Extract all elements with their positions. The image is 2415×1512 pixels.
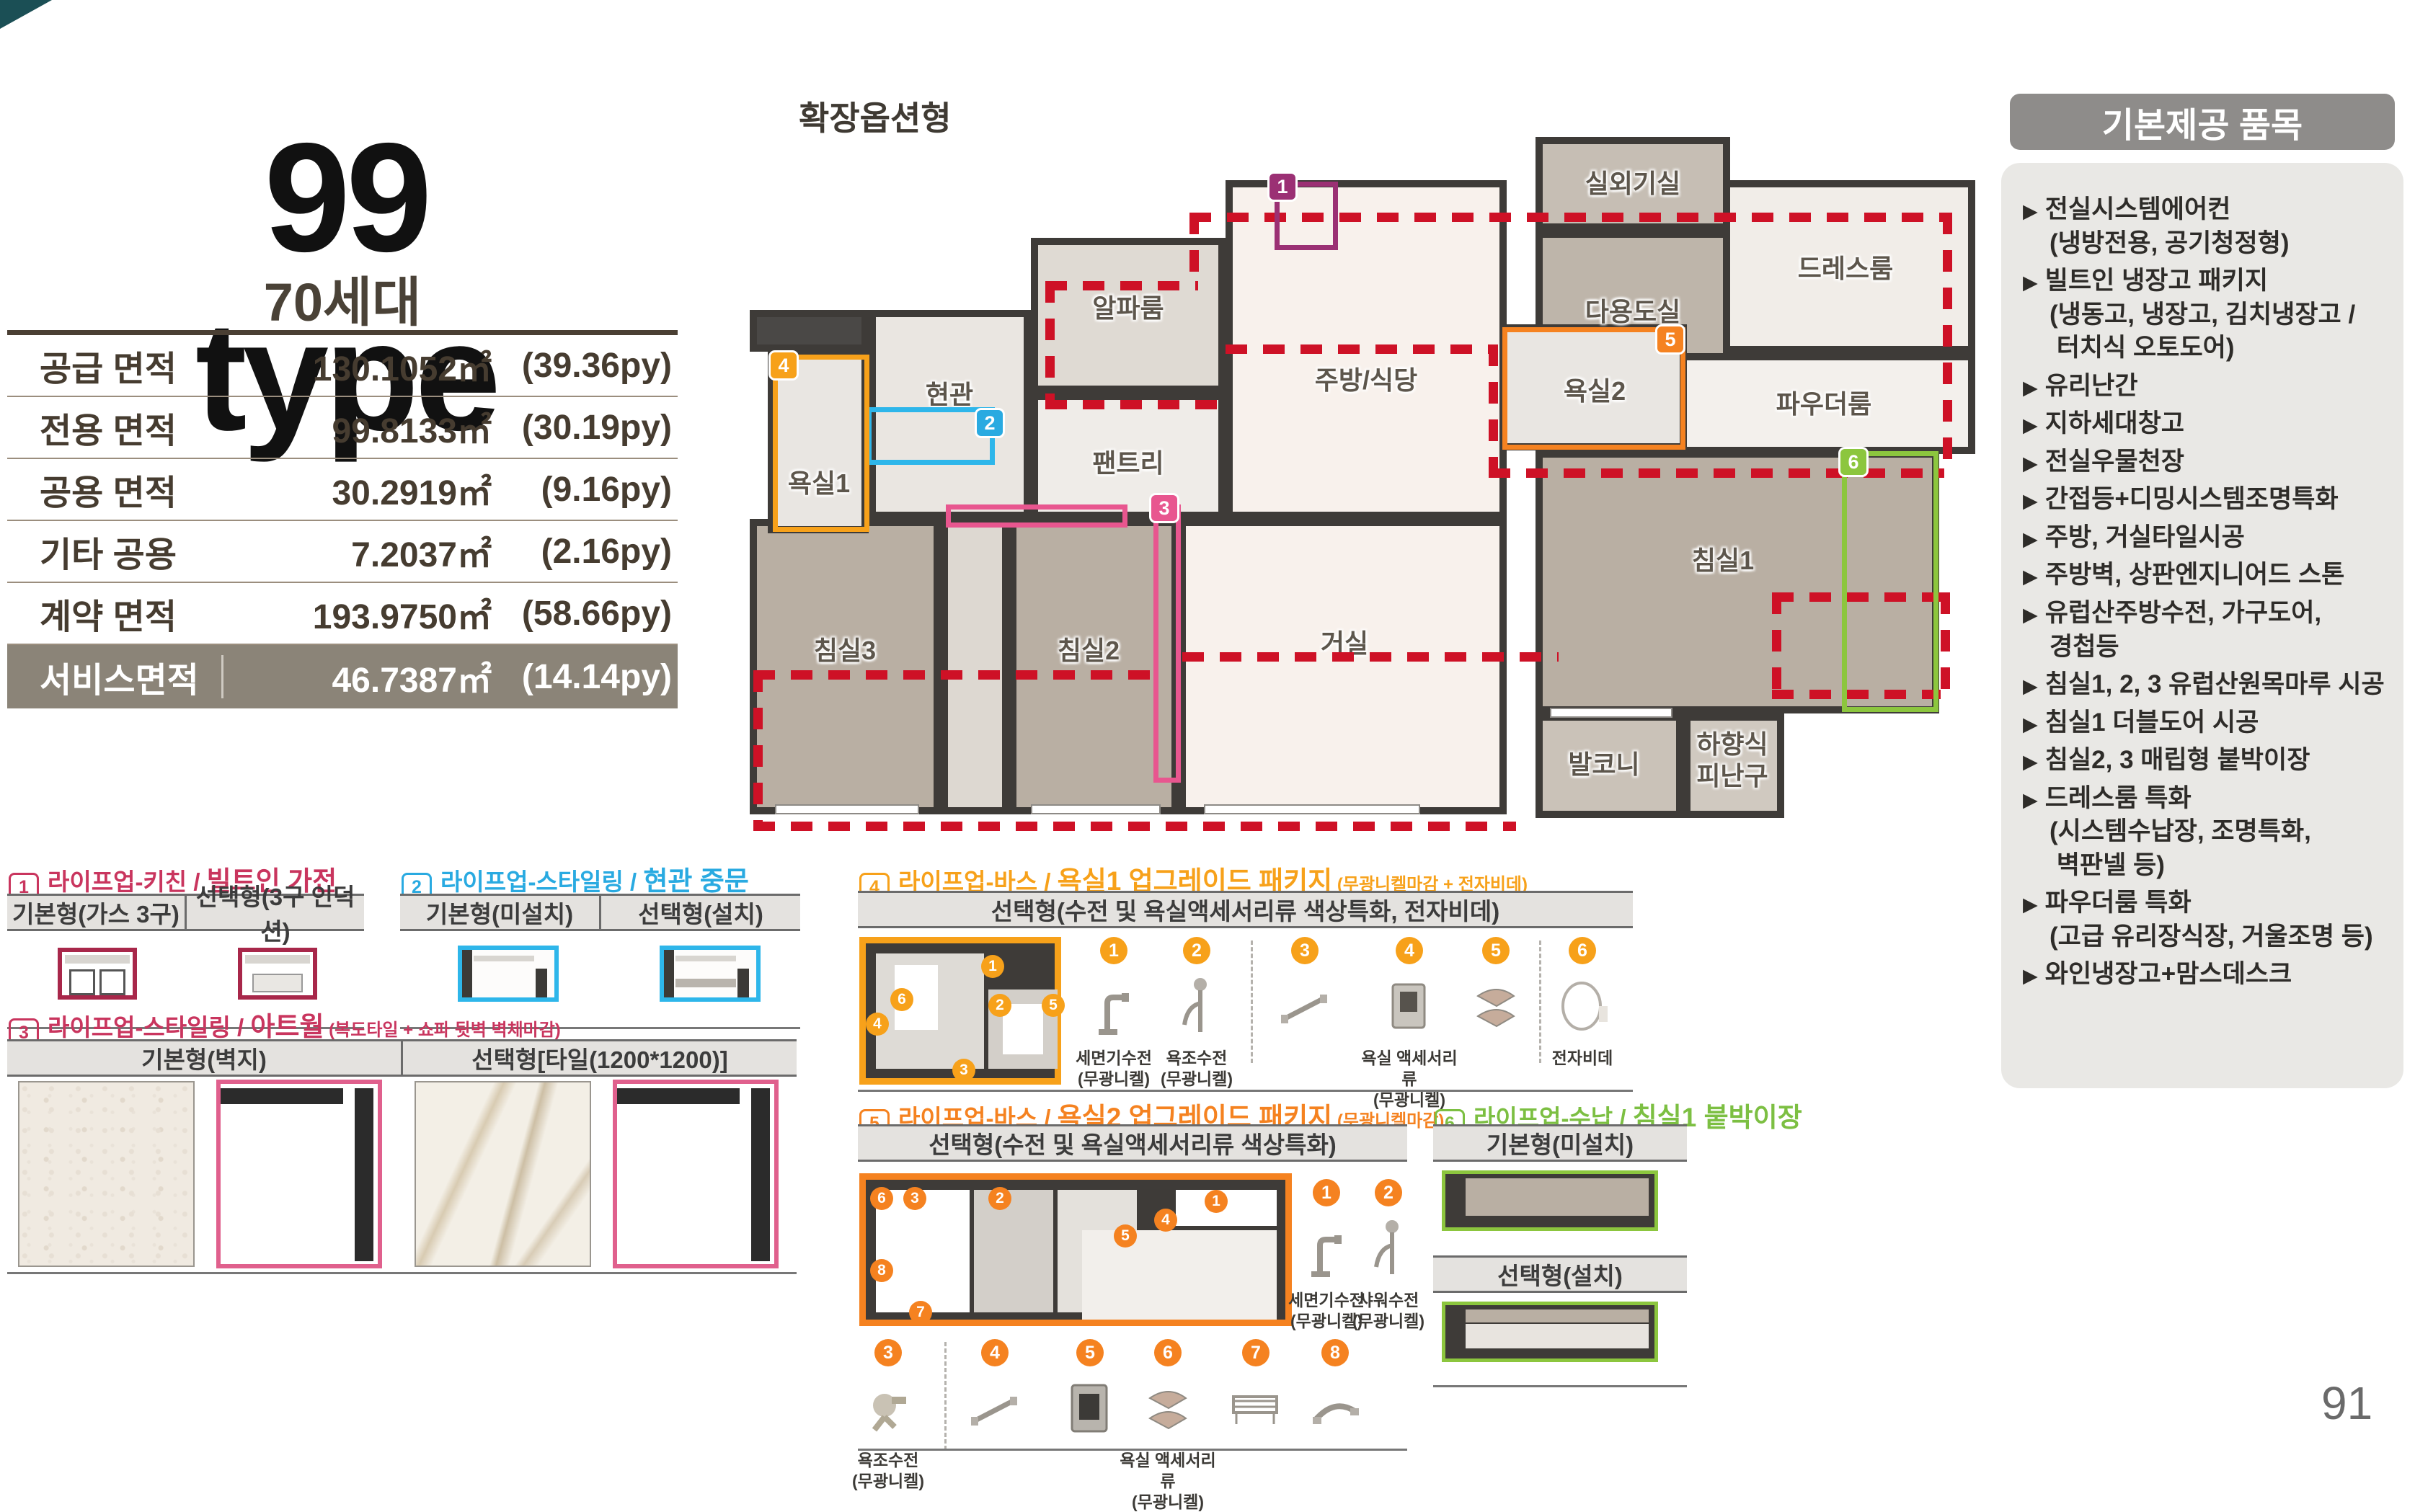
bar-icon bbox=[1277, 974, 1333, 1041]
extension-dashed-line bbox=[1772, 592, 1781, 691]
option-badge-5: 5 bbox=[1655, 324, 1685, 355]
product-badge-4: 4 bbox=[1396, 937, 1423, 964]
section4-bottom-line bbox=[858, 1090, 1633, 1092]
extension-dashed-line bbox=[753, 670, 1156, 680]
option-badge-3: 3 bbox=[1149, 493, 1179, 523]
section6-header-basic: 기본형(미설치) bbox=[1433, 1124, 1687, 1162]
section3-header: 기본형(벽지)선택형[타일(1200*1200)] bbox=[7, 1039, 797, 1077]
option-badge-1: 1 bbox=[1267, 172, 1298, 202]
closet-installed-image bbox=[1442, 1302, 1658, 1362]
faucet-icon bbox=[1086, 974, 1142, 1041]
product-badge-2: 2 bbox=[1183, 937, 1210, 964]
bidet-icon bbox=[1554, 974, 1610, 1041]
extension-dashed-line bbox=[1182, 652, 1559, 662]
section3-bottom-line bbox=[7, 1272, 797, 1274]
extension-dashed-line bbox=[1226, 344, 1491, 354]
tissue-icon bbox=[1062, 1377, 1118, 1443]
section5-header: 선택형(수전 및 욕실액세서리류 색상특화) bbox=[858, 1124, 1407, 1162]
section6-header-select: 선택형(설치) bbox=[1433, 1255, 1687, 1293]
product-badge-6: 6 bbox=[1569, 937, 1596, 964]
extension-dashed-line bbox=[753, 822, 1516, 831]
miniplan-badge-2: 2 bbox=[988, 1187, 1011, 1210]
header-cell: 선택형(수전 및 욕실액세서리류 색상특화, 전자비데) bbox=[858, 892, 1633, 927]
section6-bottom-line bbox=[1433, 1385, 1687, 1387]
window-strip bbox=[775, 804, 919, 814]
product-divider bbox=[944, 1342, 947, 1450]
section5-product: 4 bbox=[941, 1339, 1049, 1443]
wallpaper-sample-image bbox=[18, 1081, 195, 1267]
product-divider bbox=[1539, 940, 1541, 1063]
shower-icon bbox=[1169, 974, 1225, 1041]
section4-product: 6전자비데 bbox=[1528, 937, 1636, 1069]
section2-header: 기본형(미설치)선택형(설치) bbox=[400, 894, 800, 931]
extension-dashed-line bbox=[1045, 281, 1055, 402]
door-none-image bbox=[458, 946, 559, 1002]
handle-icon bbox=[1307, 1377, 1363, 1443]
option-badge-6: 6 bbox=[1838, 447, 1869, 477]
extension-dashed-line bbox=[1943, 213, 1952, 471]
header-cell: 선택형(설치) bbox=[1433, 1257, 1687, 1291]
extension-dashed-line bbox=[1189, 213, 1199, 283]
section5-product: 3욕조수전(무광니켈) bbox=[834, 1339, 942, 1492]
miniplan-badge-6: 6 bbox=[870, 1187, 893, 1210]
miniplan-badge-4: 4 bbox=[866, 1013, 889, 1036]
bath1-upgrade-plan: 164253 bbox=[859, 937, 1061, 1085]
shelves-icon bbox=[1140, 1377, 1196, 1443]
rack-icon bbox=[1228, 1377, 1284, 1443]
product-badge-3: 3 bbox=[874, 1339, 902, 1366]
miniplan-badge-6: 6 bbox=[890, 988, 913, 1011]
extension-dashed-line bbox=[753, 670, 763, 823]
miniplan-badge-4: 4 bbox=[1154, 1209, 1177, 1232]
section5-product: 8 bbox=[1281, 1339, 1389, 1443]
door-installed-image bbox=[660, 946, 761, 1002]
bar-icon bbox=[967, 1377, 1023, 1443]
product-badge-5: 5 bbox=[1076, 1339, 1104, 1366]
option-outline bbox=[1153, 504, 1181, 783]
miniplan-room bbox=[1082, 1230, 1277, 1320]
product-badge-4: 4 bbox=[981, 1339, 1009, 1366]
bath2-upgrade-plan: 63251487 bbox=[859, 1173, 1292, 1326]
option-badge-4: 4 bbox=[768, 350, 799, 381]
extension-dashed-line bbox=[1941, 592, 1950, 691]
extension-dashed-line bbox=[1045, 281, 1198, 290]
product-badge-6: 6 bbox=[1154, 1339, 1182, 1366]
header-cell: 기본형(미설치) bbox=[400, 895, 599, 930]
extension-dashed-line bbox=[1489, 344, 1498, 471]
miniplan-badge-2: 2 bbox=[988, 994, 1011, 1017]
miniplan-badge-1: 1 bbox=[981, 955, 1004, 978]
tubfaucet-icon bbox=[860, 1377, 916, 1443]
miniplan-room bbox=[974, 1190, 1053, 1312]
artwall-corner-diagram bbox=[216, 1080, 382, 1268]
header-cell: 선택형(3구 인덕션) bbox=[187, 878, 364, 947]
section5-product: 2샤워수전(무광니켈) bbox=[1334, 1179, 1443, 1332]
product-caption: 욕조수전(무광니켈) bbox=[834, 1450, 942, 1492]
closet-basic-image bbox=[1442, 1170, 1658, 1231]
miniplan-badge-7: 7 bbox=[909, 1301, 932, 1324]
header-cell: 선택형[타일(1200*1200)] bbox=[403, 1041, 797, 1075]
shower-icon bbox=[1360, 1217, 1417, 1283]
miniplan-badge-1: 1 bbox=[1205, 1190, 1228, 1213]
section4-product: 3 bbox=[1251, 937, 1359, 1041]
artwall-corner-diagram bbox=[613, 1080, 779, 1268]
section4-header: 선택형(수전 및 욕실액세서리류 색상특화, 전자비데) bbox=[858, 891, 1633, 928]
window-strip bbox=[1031, 804, 1161, 814]
plate-icon bbox=[1381, 974, 1437, 1041]
page-number: 91 bbox=[2321, 1377, 2372, 1430]
product-badge-7: 7 bbox=[1242, 1339, 1269, 1366]
product-badge-5: 5 bbox=[1482, 937, 1510, 964]
miniplan-badge-8: 8 bbox=[870, 1259, 893, 1282]
gas-cooktop-image bbox=[58, 948, 137, 1000]
header-cell: 기본형(가스 3구) bbox=[7, 895, 185, 930]
miniplan-badge-5: 5 bbox=[1042, 994, 1065, 1017]
option-outline bbox=[946, 504, 1127, 528]
product-caption: 욕조수전(무광니켈) bbox=[1143, 1048, 1251, 1090]
product-badge-3: 3 bbox=[1291, 937, 1319, 964]
miniplan-badge-5: 5 bbox=[1114, 1224, 1137, 1248]
induction-cooktop-image bbox=[238, 948, 317, 1000]
shelves-icon bbox=[1468, 974, 1524, 1041]
header-cell: 기본형(미설치) bbox=[1433, 1126, 1687, 1160]
option-outline bbox=[1842, 451, 1938, 712]
window-strip bbox=[1204, 804, 1420, 814]
header-cell: 선택형(설치) bbox=[601, 895, 800, 930]
product-badge-2: 2 bbox=[1375, 1179, 1402, 1206]
product-badge-1: 1 bbox=[1100, 937, 1127, 964]
option-outline bbox=[773, 355, 869, 532]
extension-dashed-line bbox=[1045, 400, 1227, 409]
product-badge-8: 8 bbox=[1321, 1339, 1349, 1366]
section1-header: 기본형(가스 3구)선택형(3구 인덕션) bbox=[7, 894, 364, 931]
section5-bottom-line bbox=[858, 1449, 1407, 1451]
option-badge-2: 2 bbox=[975, 408, 1005, 438]
product-caption: 샤워수전(무광니켈) bbox=[1334, 1290, 1443, 1332]
miniplan-room bbox=[876, 1190, 970, 1312]
window-strip bbox=[1550, 708, 1672, 718]
product-caption: 전자비데 bbox=[1528, 1048, 1636, 1069]
product-divider bbox=[1251, 940, 1253, 1063]
section4-product: 2욕조수전(무광니켈) bbox=[1143, 937, 1251, 1090]
header-cell: 기본형(벽지) bbox=[7, 1041, 401, 1075]
miniplan-badge-3: 3 bbox=[952, 1059, 975, 1082]
miniplan-badge-3: 3 bbox=[903, 1187, 926, 1210]
header-cell: 선택형(수전 및 욕실액세서리류 색상특화) bbox=[858, 1126, 1407, 1160]
tile-sample-image bbox=[415, 1081, 591, 1267]
